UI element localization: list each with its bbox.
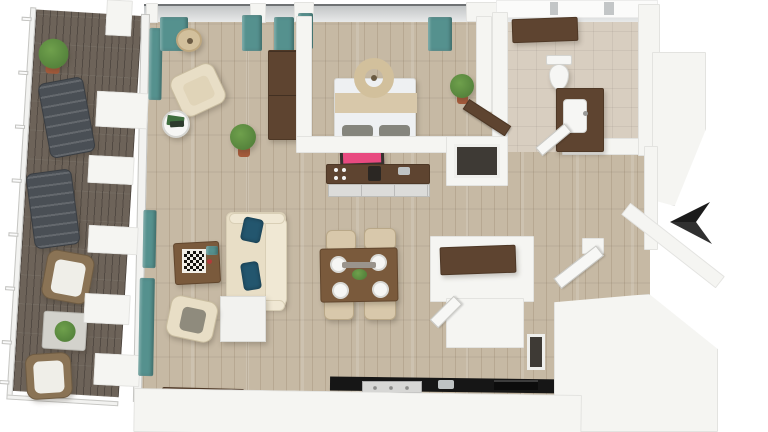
arrow-lower-facet xyxy=(670,222,712,244)
exterior-wall-sliver xyxy=(105,0,133,37)
railing-post xyxy=(21,17,31,22)
window-pier xyxy=(95,91,149,130)
bedroom-right-wall xyxy=(476,16,492,112)
outer-wall-bottom xyxy=(133,388,582,432)
railing-post xyxy=(18,71,28,76)
chess-board xyxy=(182,249,206,273)
lamp-center xyxy=(187,38,193,44)
drawer-unit xyxy=(328,184,430,197)
book xyxy=(170,121,184,128)
balcony xyxy=(13,10,142,398)
seat-cushion xyxy=(179,306,207,334)
roof-slab-bathroom xyxy=(496,0,658,18)
window-gap xyxy=(604,2,614,15)
curtain-top xyxy=(242,15,262,51)
green-bowl xyxy=(352,269,367,280)
wall-niche xyxy=(527,334,545,370)
seat-cushion xyxy=(182,74,217,107)
bath-storage-cabinet xyxy=(512,17,579,43)
railing-post xyxy=(8,232,18,237)
table-decor-red xyxy=(207,259,212,264)
curtain-left xyxy=(142,210,156,268)
sun-lounger xyxy=(25,168,81,249)
bedroom-potted-plant xyxy=(450,74,474,98)
curtain-top xyxy=(428,17,452,51)
knob xyxy=(342,168,346,172)
counter-items xyxy=(398,167,410,175)
floor-plan-scene xyxy=(0,0,768,432)
arrow-upper-facet xyxy=(670,202,710,222)
outer-wall-right-upper xyxy=(652,52,706,206)
sofa-backrest xyxy=(265,216,287,307)
window-pier xyxy=(83,293,131,325)
railing-post xyxy=(12,178,22,183)
closet-brown-counter xyxy=(440,245,517,276)
railing-post xyxy=(2,340,12,345)
bedroom-bottom-wall xyxy=(296,136,464,153)
cutlery-tray xyxy=(342,262,376,268)
stacked-appliance-niche xyxy=(454,144,500,178)
cube-side-table xyxy=(220,296,266,342)
railing-post xyxy=(0,380,9,385)
tall-cabinet xyxy=(268,50,298,140)
chair-cushion xyxy=(50,258,87,297)
table-decor-teal xyxy=(206,246,218,255)
knob xyxy=(334,176,338,180)
window-pier xyxy=(93,353,141,387)
railing-post xyxy=(15,124,25,129)
bedroom-left-wall xyxy=(296,16,312,152)
place-setting xyxy=(372,281,389,298)
chair-cushion xyxy=(33,360,65,394)
nook-potted-plant xyxy=(230,124,256,150)
window-gap xyxy=(550,2,558,15)
coffee-maker xyxy=(368,166,381,181)
pot-on-stove xyxy=(438,380,454,389)
curtain-left xyxy=(138,278,155,376)
wicker-armchair xyxy=(24,352,73,401)
place-setting xyxy=(332,282,349,299)
entry-arrow-marker xyxy=(664,194,718,250)
pendant-center xyxy=(371,75,377,81)
knob xyxy=(334,168,338,172)
faucet xyxy=(583,111,588,116)
plant-side-table xyxy=(42,311,88,352)
window-pier xyxy=(87,225,138,256)
built-in-appliance xyxy=(494,380,538,390)
knob xyxy=(342,176,346,180)
vanity-cabinet xyxy=(556,88,604,152)
railing-post xyxy=(5,286,15,291)
table-plant xyxy=(54,320,76,342)
drum-floor-lamp xyxy=(176,28,202,52)
ring-pendant-lamp xyxy=(354,58,394,98)
window-pier xyxy=(87,155,134,185)
